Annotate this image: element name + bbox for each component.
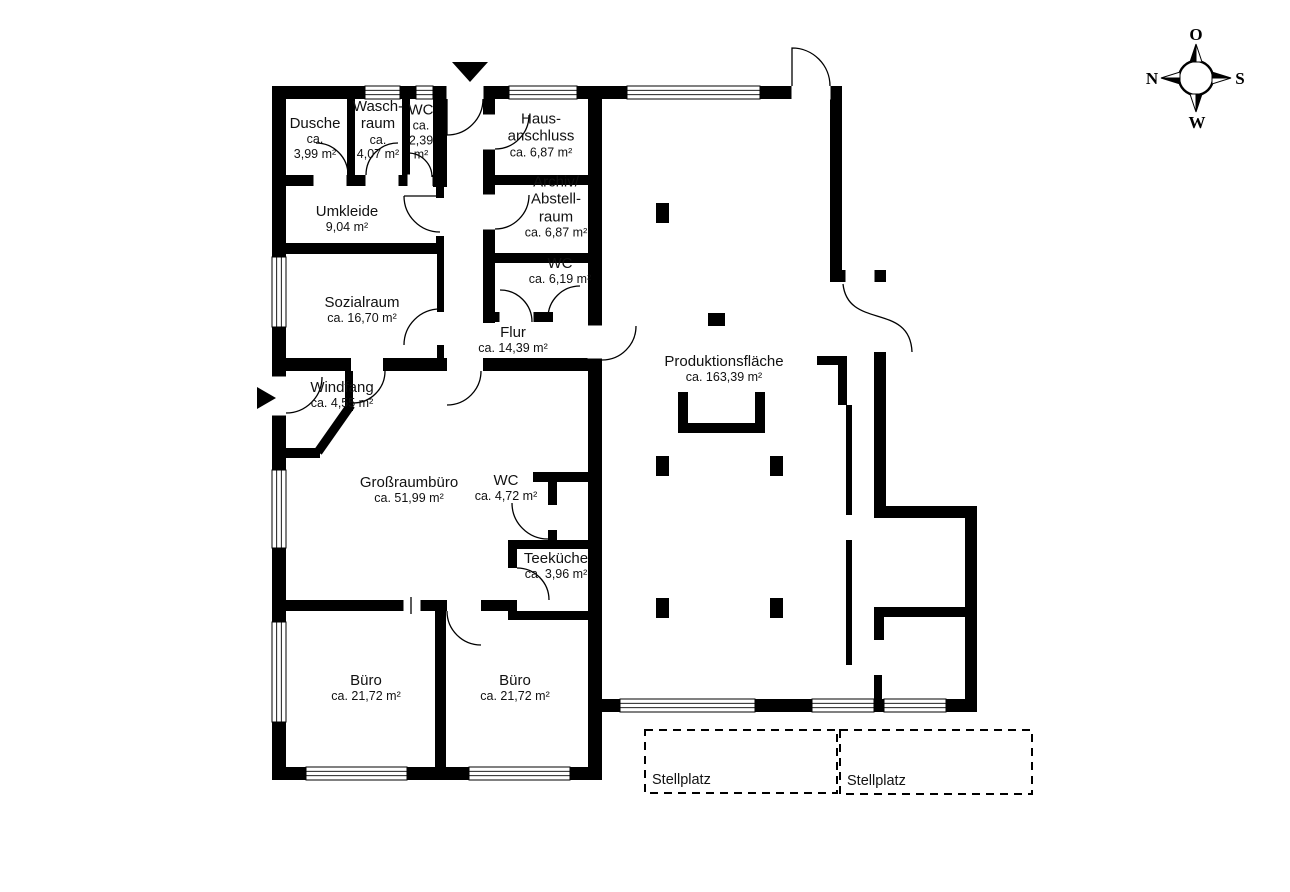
door-swing xyxy=(447,611,481,645)
door-swing xyxy=(408,153,432,177)
door-opening xyxy=(408,175,433,187)
window xyxy=(884,699,946,712)
wall-segment xyxy=(830,86,842,282)
support-column xyxy=(770,456,783,476)
door-swing xyxy=(512,503,548,539)
door-opening xyxy=(447,86,484,100)
door-opening xyxy=(588,326,603,359)
wall-segment xyxy=(272,243,442,254)
wall-segment xyxy=(435,611,446,767)
door-swing xyxy=(517,568,549,600)
entrance-arrow-icon xyxy=(452,62,488,82)
compass-spike xyxy=(1161,78,1180,84)
support-column xyxy=(708,313,725,326)
compass-spike xyxy=(1161,72,1180,78)
window xyxy=(620,699,755,712)
support-column xyxy=(770,598,783,618)
wall-segment xyxy=(588,86,602,780)
wall-segment xyxy=(495,175,588,185)
compass-circle xyxy=(1179,61,1213,95)
floorplan-canvas: OSWN StellplatzStellplatzDuscheca.3,99 m… xyxy=(0,0,1290,892)
door-swing xyxy=(404,309,440,345)
parking-space xyxy=(645,730,837,793)
door-opening xyxy=(404,600,421,612)
wall-segment xyxy=(347,99,355,175)
wall-segment xyxy=(678,423,765,433)
compass-spike xyxy=(1212,72,1231,78)
compass-spike xyxy=(1190,44,1196,62)
door-swing xyxy=(843,284,912,352)
window xyxy=(627,86,760,99)
parking-space xyxy=(840,730,1032,794)
compass-direction-label: O xyxy=(1189,25,1202,44)
compass-spike xyxy=(1212,78,1231,84)
door-swing xyxy=(792,48,830,86)
wall-segment xyxy=(272,358,351,371)
window xyxy=(272,622,286,722)
compass-spike xyxy=(1196,94,1202,112)
door-opening xyxy=(314,175,347,187)
wall-segment xyxy=(286,600,447,611)
door-swing xyxy=(404,196,440,232)
wall-segment xyxy=(437,254,444,312)
wall-segment xyxy=(838,356,847,405)
wall-segment xyxy=(508,611,602,620)
door-swing xyxy=(602,326,636,360)
door-swing xyxy=(366,143,398,175)
support-column xyxy=(656,456,669,476)
wall-segment xyxy=(481,600,516,611)
window xyxy=(812,699,874,712)
wall-segment xyxy=(874,617,884,640)
support-column xyxy=(656,203,669,223)
door-swing xyxy=(495,195,529,229)
door-opening xyxy=(272,377,287,416)
wall-segment xyxy=(874,675,882,701)
wall-diagonal xyxy=(318,405,351,452)
wall-segment xyxy=(508,549,517,568)
door-opening xyxy=(846,270,875,283)
window xyxy=(509,86,577,99)
wall-segment xyxy=(483,358,602,371)
window xyxy=(272,470,286,548)
wall-segment xyxy=(508,540,602,549)
wall-segment xyxy=(402,99,410,175)
compass-spike xyxy=(1196,44,1202,62)
door-swing xyxy=(316,143,348,175)
window xyxy=(272,257,286,327)
wall-segment xyxy=(755,392,765,433)
compass-spike xyxy=(1190,94,1196,112)
door-opening xyxy=(500,312,534,323)
wall-segment xyxy=(533,472,602,482)
support-column xyxy=(656,598,669,618)
door-swing xyxy=(447,99,483,135)
door-opening xyxy=(483,195,496,230)
wall-segment xyxy=(548,472,557,505)
door-opening xyxy=(792,86,831,100)
wall-segment xyxy=(483,253,588,263)
wall-segment xyxy=(846,405,852,515)
door-swing xyxy=(447,371,481,405)
floor-plan: OSWN xyxy=(0,0,1290,892)
wall-segment xyxy=(874,607,977,617)
door-swing xyxy=(495,115,529,149)
wall-segment xyxy=(874,352,886,518)
wall-segment xyxy=(874,506,977,518)
door-opening xyxy=(366,175,399,187)
door-swing xyxy=(286,377,322,413)
compass-direction-label: S xyxy=(1235,69,1244,88)
wall-segment xyxy=(846,540,852,665)
window xyxy=(365,86,400,99)
window xyxy=(416,86,433,99)
compass-direction-label: N xyxy=(1146,69,1159,88)
window xyxy=(306,767,407,780)
wall-segment xyxy=(433,99,447,187)
door-swing xyxy=(353,371,385,403)
window xyxy=(469,767,570,780)
door-opening xyxy=(483,115,496,150)
wall-segment xyxy=(383,358,447,371)
compass-direction-label: W xyxy=(1189,113,1206,132)
